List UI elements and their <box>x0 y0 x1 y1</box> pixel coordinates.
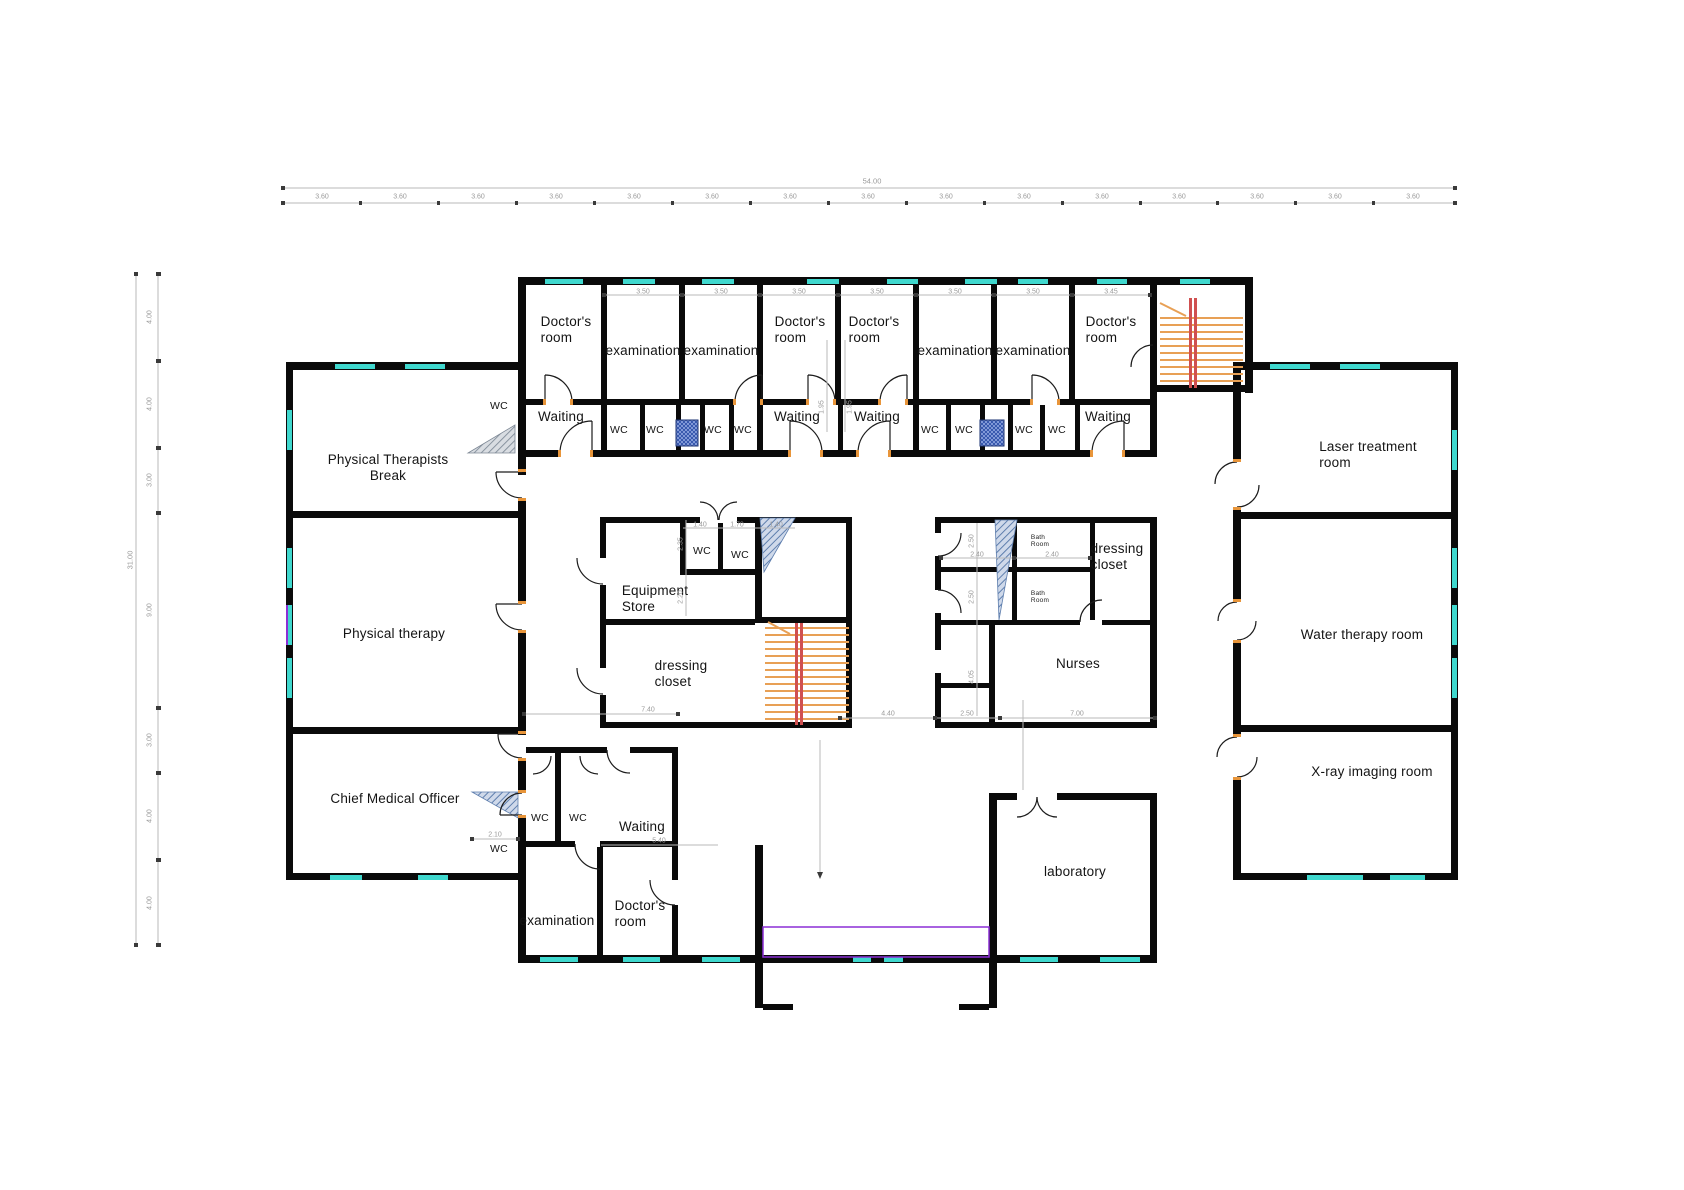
room-label-bath-room-1: Bath Room <box>1031 534 1049 548</box>
room-label-doctors-room-2: Doctor's room <box>775 314 826 346</box>
dim-wc-3: 1.40 <box>769 522 783 529</box>
wc-label-5: WC <box>921 424 939 436</box>
room-label-physical-therapists-break: Physical Therapists Break <box>328 452 449 484</box>
room-label-examination-1: examination <box>606 343 681 359</box>
room-label-dressing-closet-2: dressing closet <box>1091 541 1144 573</box>
dim-bottom-2: 5.40 <box>652 838 666 845</box>
dim-vert-3: 2.35 <box>678 537 685 551</box>
dim-vert-2: 1.95 <box>847 400 854 414</box>
wc-label-8: WC <box>1048 424 1066 436</box>
walls <box>286 277 1458 963</box>
dim-top-seg-7: 3.60 <box>783 194 797 201</box>
dim-hall-2: 4.40 <box>881 711 895 718</box>
dim-vert-1: 1.95 <box>819 400 826 414</box>
dim-hall-3: 2.50 <box>960 711 974 718</box>
dim-top-seg-4: 3.60 <box>549 194 563 201</box>
wc-label-6: WC <box>955 424 973 436</box>
dim-top-seg-12: 3.60 <box>1172 194 1186 201</box>
wc-label-3: WC <box>704 424 722 436</box>
dim-left-seg-7: 4.00 <box>147 896 154 910</box>
stairs-top-right <box>1160 298 1243 388</box>
room-label-waiting-2: Waiting <box>774 409 820 425</box>
dim-vert-6: 2.50 <box>969 590 976 604</box>
dim-left-total: 31.00 <box>126 551 135 570</box>
room-label-doctors-room-1: Doctor's room <box>541 314 592 346</box>
wc-label-13: WC <box>569 812 587 824</box>
dim-top-seg-3: 3.60 <box>471 194 485 201</box>
floor-plan-drawing <box>0 0 1684 1190</box>
dim-top-seg-6: 3.60 <box>705 194 719 201</box>
dim-wc-2: 1.70 <box>730 522 744 529</box>
wc-label-7: WC <box>1015 424 1033 436</box>
dim-top-seg-10: 3.60 <box>1017 194 1031 201</box>
dim-vert-7: 4.05 <box>969 670 976 684</box>
dim-top-seg-5: 3.60 <box>627 194 641 201</box>
wc-label-14: WC <box>490 843 508 855</box>
dim-left-seg-2: 4.00 <box>147 397 154 411</box>
room-label-doctors-room-4: Doctor's room <box>1086 314 1137 346</box>
dim-top-total: 54.00 <box>863 177 882 186</box>
floor-plan-canvas: Doctor's room examination examination Do… <box>0 0 1684 1190</box>
dim-room-width-5: 3.50 <box>948 289 962 296</box>
room-label-doctors-room-5: Doctor's room <box>615 898 666 930</box>
room-label-examination-2: examination <box>684 343 759 359</box>
room-label-xray-imaging-room: X-ray imaging room <box>1311 764 1432 780</box>
entrance-porch <box>755 962 997 1010</box>
dim-bottom-1: 2.10 <box>488 832 502 839</box>
wc-label-1: WC <box>610 424 628 436</box>
dim-left-seg-6: 4.00 <box>147 809 154 823</box>
dim-wc-1: 1.40 <box>693 522 707 529</box>
dim-vert-4: 2.20 <box>678 590 685 604</box>
room-label-examination-3: examination <box>918 343 993 359</box>
dim-hall-1: 7.40 <box>641 707 655 714</box>
stairs-central <box>765 622 849 725</box>
dim-top-seg-9: 3.60 <box>939 194 953 201</box>
dim-vert-5: 2.50 <box>969 534 976 548</box>
dim-top-seg-15: 3.60 <box>1406 194 1420 201</box>
room-label-examination-5: examination <box>520 913 595 929</box>
dim-left-seg-3: 3.00 <box>147 473 154 487</box>
room-label-chief-medical-officer: Chief Medical Officer <box>330 791 459 807</box>
wc-label-4: WC <box>734 424 752 436</box>
wc-label-11: WC <box>731 549 749 561</box>
room-label-waiting-1: Waiting <box>538 409 584 425</box>
dim-top-seg-8: 3.60 <box>861 194 875 201</box>
wc-label-2: WC <box>646 424 664 436</box>
wc-label-12: WC <box>531 812 549 824</box>
dim-top-seg-11: 3.60 <box>1095 194 1109 201</box>
room-label-doctors-room-3: Doctor's room <box>849 314 900 346</box>
wc-label-9: WC <box>490 400 508 412</box>
room-label-nurses: Nurses <box>1056 656 1100 672</box>
dimension-lines <box>136 188 1455 947</box>
dim-top-seg-14: 3.60 <box>1328 194 1342 201</box>
room-label-physical-therapy: Physical therapy <box>343 626 445 642</box>
dim-room-width-4: 3.50 <box>870 289 884 296</box>
windows <box>286 279 1457 962</box>
room-label-laser-treatment-room: Laser treatment room <box>1319 439 1417 471</box>
dim-room-width-1: 3.50 <box>636 289 650 296</box>
room-label-waiting-5: Waiting <box>619 819 665 835</box>
room-label-water-therapy-room: Water therapy room <box>1301 627 1423 643</box>
dim-left-seg-5: 3.00 <box>147 733 154 747</box>
dimension-ticks <box>134 186 1457 947</box>
dim-left-seg-1: 4.00 <box>147 310 154 324</box>
dim-room-width-6: 3.50 <box>1026 289 1040 296</box>
dim-top-seg-13: 3.60 <box>1250 194 1264 201</box>
dim-room-width-7: 3.45 <box>1104 289 1118 296</box>
wc-label-10: WC <box>693 545 711 557</box>
room-label-laboratory: laboratory <box>1044 864 1106 880</box>
dim-bath-1: 2.40 <box>970 552 984 559</box>
dim-bath-2: 2.40 <box>1045 552 1059 559</box>
dim-hall-4: 7.00 <box>1070 711 1084 718</box>
dim-room-width-3: 3.50 <box>792 289 806 296</box>
room-label-waiting-3: Waiting <box>854 409 900 425</box>
room-label-waiting-4: Waiting <box>1085 409 1131 425</box>
entrance-vestibule <box>763 927 989 957</box>
room-label-examination-4: examination <box>996 343 1071 359</box>
dim-top-seg-1: 3.60 <box>315 194 329 201</box>
dim-left-seg-4: 9.00 <box>147 603 154 617</box>
dim-room-width-2: 3.50 <box>714 289 728 296</box>
room-label-bath-room-2: Bath Room <box>1031 590 1049 604</box>
dim-top-seg-2: 3.60 <box>393 194 407 201</box>
room-label-dressing-closet-1: dressing closet <box>655 658 708 690</box>
